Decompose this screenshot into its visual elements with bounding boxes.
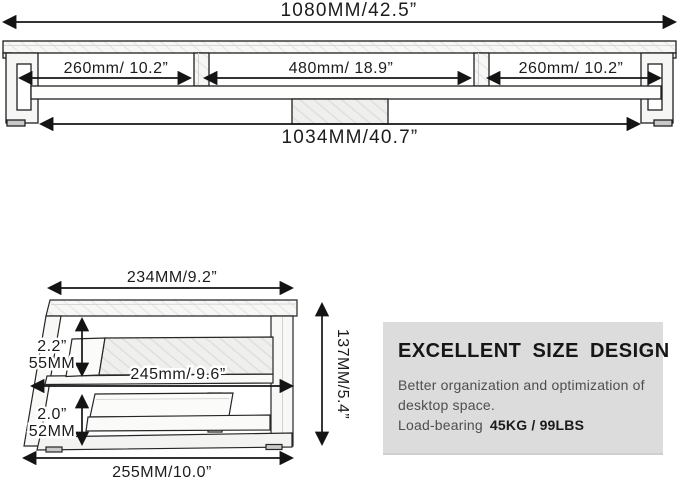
- top-shelf-board: [3, 41, 676, 53]
- top-depth-label: 234MM/9.2”: [127, 269, 217, 286]
- load-bearing-value: 45KG / 99LBS: [490, 417, 584, 433]
- info-body-line1: Better organization and optimization of: [398, 377, 645, 393]
- right-compartment-label: 260mm/ 10.2”: [519, 60, 624, 77]
- side-left-foot: [46, 447, 62, 452]
- side-right-foot: [266, 445, 282, 450]
- side-top-board-edge: [51, 304, 296, 305]
- overall-width-label: 1080MM/42.5”: [281, 0, 418, 21]
- inner-width-label: 1034MM/40.7”: [282, 127, 419, 148]
- overall-height-label: 137MM/5.4”: [334, 329, 351, 419]
- side-bottom-member: [37, 433, 292, 450]
- mid-depth-label: 245mm/ 9.6”: [130, 366, 225, 383]
- side-bottom-rail: [86, 415, 270, 431]
- right-divider: [474, 53, 489, 86]
- load-bearing-label: Load-bearing: [398, 417, 483, 433]
- upper-gap-inches-label: 2.2”: [37, 338, 67, 355]
- left-divider: [194, 53, 209, 86]
- base-depth-label: 255MM/10.0”: [112, 464, 212, 480]
- info-box-body: Better organization and optimization of …: [398, 375, 648, 435]
- upper-gap-mm-label: 55MM: [29, 355, 75, 372]
- lower-gap-mm-label: 52MM: [29, 423, 75, 440]
- side-top-board: [46, 300, 297, 316]
- side-lower-shelf: [90, 393, 233, 417]
- center-support-block: [292, 99, 388, 124]
- info-box: EXCELLENT SIZE DESIGN Better organizatio…: [383, 322, 663, 455]
- lower-gap-inches-label: 2.0”: [37, 406, 67, 423]
- info-box-title: EXCELLENT SIZE DESIGN: [398, 340, 648, 363]
- middle-shelf-bar: [31, 86, 661, 99]
- info-body-line2: desktop space.: [398, 397, 495, 413]
- left-compartment-label: 260mm/ 10.2”: [64, 60, 169, 77]
- left-leg-hole: [17, 64, 31, 110]
- right-foot: [654, 120, 672, 126]
- product-dimension-sheet: 1080MM/42.5” 260mm/ 10.2” 480mm/ 18.9” 2…: [0, 0, 679, 480]
- left-foot: [7, 120, 25, 126]
- front-view-drawing: [3, 41, 676, 126]
- center-compartment-label: 480mm/ 18.9”: [289, 60, 394, 77]
